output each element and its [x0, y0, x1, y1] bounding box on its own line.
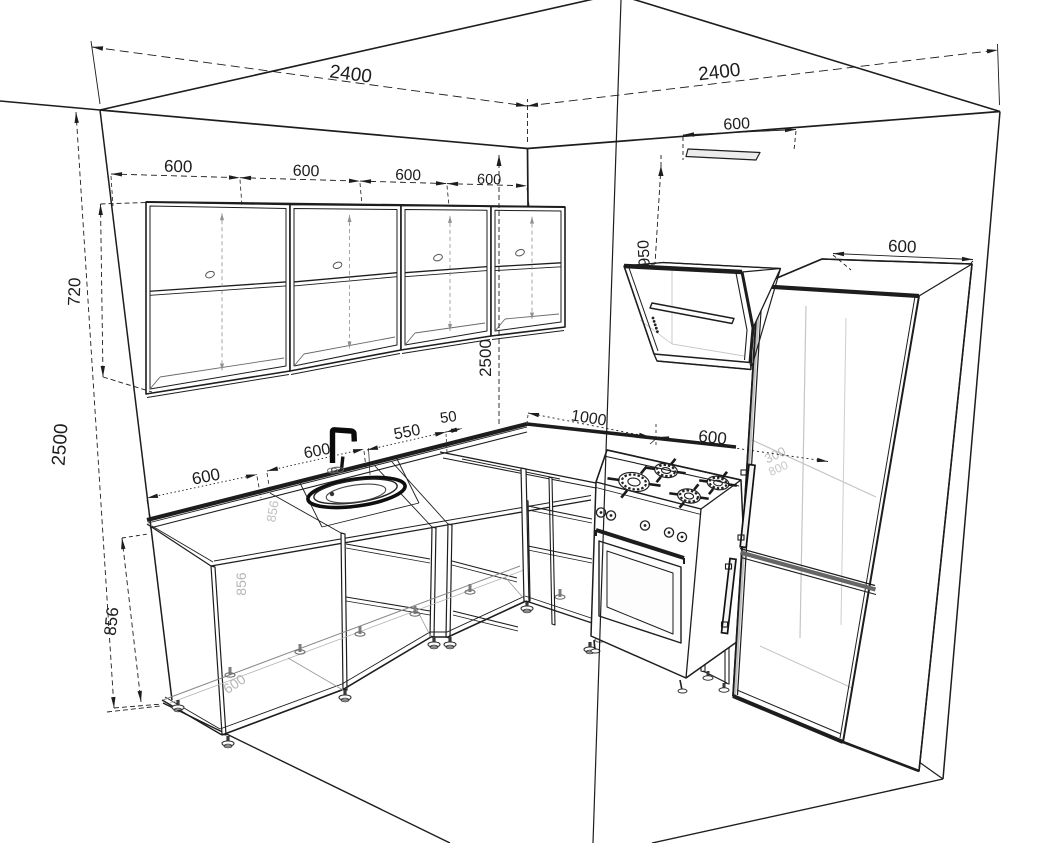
svg-text:600: 600: [697, 427, 727, 449]
svg-text:2500: 2500: [476, 339, 495, 377]
svg-text:856: 856: [233, 572, 249, 596]
svg-text:600: 600: [164, 157, 193, 177]
svg-text:600: 600: [477, 172, 502, 189]
svg-text:600: 600: [888, 236, 917, 256]
svg-text:950: 950: [635, 239, 653, 267]
svg-text:856: 856: [101, 606, 123, 636]
svg-text:600: 600: [293, 163, 320, 181]
svg-text:600: 600: [723, 115, 751, 133]
svg-text:2500: 2500: [49, 423, 73, 467]
svg-text:720: 720: [65, 277, 85, 306]
svg-text:600: 600: [395, 167, 422, 185]
svg-text:50: 50: [439, 408, 458, 427]
